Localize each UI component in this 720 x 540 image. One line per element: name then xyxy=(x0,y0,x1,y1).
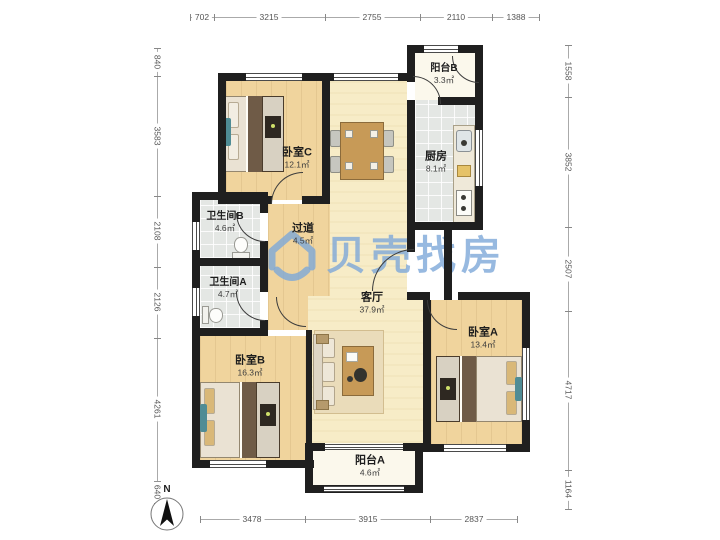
room-label-hallway: 过道 4.5㎡ xyxy=(292,221,314,246)
wall xyxy=(423,300,431,444)
bed-a-throw xyxy=(515,377,522,401)
dim-tick xyxy=(154,338,161,339)
wall xyxy=(438,97,483,105)
room-name: 卧室C xyxy=(282,146,312,158)
toilet-b-bowl xyxy=(234,237,248,253)
dim-top-1: 3215 xyxy=(257,12,282,23)
dim-tick xyxy=(154,267,161,268)
room-area: 4.6㎡ xyxy=(355,468,385,479)
window xyxy=(246,73,302,81)
kitchen-item xyxy=(457,165,471,177)
dim-bottom-0: 3478 xyxy=(240,514,265,525)
watermark-text: 贝壳找房 xyxy=(326,236,506,276)
dim-tick xyxy=(214,14,215,21)
room-area: 4.5㎡ xyxy=(292,236,314,247)
stove-burner xyxy=(461,195,466,200)
wall xyxy=(407,222,483,230)
wardrobe-b-knob xyxy=(266,412,270,416)
toilet-a-tank xyxy=(202,306,209,324)
dining-plate xyxy=(345,162,353,170)
dim-tick xyxy=(565,311,572,312)
dim-top-0: 702 xyxy=(192,12,212,23)
dim-right-2: 2507 xyxy=(563,257,574,282)
toilet-a-bowl xyxy=(209,308,223,323)
dim-right-3: 4717 xyxy=(563,378,574,403)
window xyxy=(192,222,200,250)
room-name: 过道 xyxy=(292,222,314,234)
north-arrow-icon xyxy=(148,495,186,533)
bed-b-throw xyxy=(200,404,207,432)
dim-tick xyxy=(565,45,572,46)
room-name: 卫生间A xyxy=(209,277,246,288)
room-label-balcony-b: 阳台B 3.3㎡ xyxy=(430,62,457,86)
bed-a-blanket xyxy=(460,356,476,422)
bed-b-blanket xyxy=(240,382,256,458)
dim-tick xyxy=(325,14,326,21)
dim-tick xyxy=(517,516,518,523)
dim-tick xyxy=(420,14,421,21)
dining-chair xyxy=(383,156,394,173)
wall xyxy=(192,192,268,200)
room-area: 16.3㎡ xyxy=(235,368,265,379)
wall xyxy=(260,192,268,213)
wardrobe-c-knob xyxy=(271,124,275,128)
coffee-table-plant xyxy=(354,368,367,382)
room-name: 卫生间B xyxy=(206,211,243,222)
dining-plate xyxy=(345,130,353,138)
dim-tick xyxy=(154,196,161,197)
wall xyxy=(458,292,530,300)
room-area: 4.6㎡ xyxy=(206,223,243,234)
dim-tick xyxy=(565,470,572,471)
dim-right-4: 1164 xyxy=(563,477,574,501)
window xyxy=(192,288,200,316)
wall xyxy=(407,100,415,230)
dim-tick xyxy=(565,509,572,510)
sliding-door xyxy=(325,444,403,450)
room-label-bath-b: 卫生间B 4.6㎡ xyxy=(206,210,243,234)
room-label-bedroom-b: 卧室B 16.3㎡ xyxy=(235,353,265,378)
dim-left-3: 2126 xyxy=(152,290,163,315)
dim-tick xyxy=(430,516,431,523)
window xyxy=(475,130,483,186)
dim-bottom-2: 2837 xyxy=(462,514,487,525)
room-name: 阳台A xyxy=(355,454,385,466)
kitchen-stove xyxy=(456,190,472,216)
dim-top-3: 2110 xyxy=(444,12,468,23)
room-area: 12.1㎡ xyxy=(282,160,312,171)
room-label-living: 客厅 37.9㎡ xyxy=(359,290,384,315)
north-label: N xyxy=(163,484,170,495)
dim-right-1: 3852 xyxy=(563,150,574,175)
wardrobe-a-knob xyxy=(446,386,450,390)
wall xyxy=(260,241,268,292)
floorplan-canvas: 贝壳找房 卧室C 12.1㎡ xyxy=(0,0,720,540)
dimension-line-left xyxy=(157,48,158,503)
wall xyxy=(403,443,423,451)
room-name: 阳台B xyxy=(430,63,457,74)
stove-burner xyxy=(461,206,466,211)
dining-chair xyxy=(383,130,394,147)
room-label-bedroom-a: 卧室A 13.4㎡ xyxy=(468,325,498,350)
sofa-arm xyxy=(316,334,329,344)
dim-right-0: 1558 xyxy=(563,59,574,84)
bed-c-blanket xyxy=(246,96,262,172)
wall xyxy=(218,73,226,200)
wall xyxy=(444,230,452,300)
sofa-arm xyxy=(316,400,329,410)
wall xyxy=(192,258,268,266)
kitchen-faucet xyxy=(461,140,467,146)
room-label-balcony-a: 阳台A 4.6㎡ xyxy=(355,453,385,478)
dim-tick xyxy=(565,227,572,228)
room-name: 卧室A xyxy=(468,326,498,338)
room-area: 3.3㎡ xyxy=(430,75,457,86)
dim-top-2: 2755 xyxy=(360,12,385,23)
window xyxy=(424,45,458,53)
wall xyxy=(192,328,268,336)
dining-plate xyxy=(370,162,378,170)
sofa-cushion xyxy=(322,362,335,382)
room-area: 37.9㎡ xyxy=(359,305,384,316)
dim-tick xyxy=(492,14,493,21)
north-indicator: N xyxy=(148,484,186,536)
wall xyxy=(407,292,430,300)
dim-left-0: 840 xyxy=(152,52,163,72)
wall xyxy=(322,81,330,204)
dim-tick xyxy=(539,14,540,21)
window xyxy=(522,348,530,420)
dim-tick xyxy=(154,48,161,49)
window xyxy=(444,444,506,452)
dim-tick xyxy=(200,516,201,523)
room-name: 客厅 xyxy=(361,291,383,303)
wall xyxy=(260,320,268,336)
coffee-table-tray xyxy=(346,352,358,362)
balcony-railing-window xyxy=(324,486,404,492)
dim-bottom-1: 3915 xyxy=(356,514,381,525)
room-name: 卧室B xyxy=(235,354,265,366)
room-label-bath-a: 卫生间A 4.7㎡ xyxy=(209,276,246,300)
room-name: 厨房 xyxy=(425,150,447,162)
dim-tick xyxy=(154,76,161,77)
dim-left-4: 4261 xyxy=(152,397,163,422)
dim-tick xyxy=(305,516,306,523)
window xyxy=(334,73,398,81)
wall xyxy=(305,443,325,451)
dim-left-2: 2108 xyxy=(152,219,163,244)
dim-tick xyxy=(190,14,191,21)
window xyxy=(210,460,266,468)
dining-plate xyxy=(370,130,378,138)
dim-left-1: 3583 xyxy=(152,124,163,149)
room-area: 8.1㎡ xyxy=(425,164,447,175)
room-label-bedroom-c: 卧室C 12.1㎡ xyxy=(282,145,312,170)
coffee-table-item xyxy=(347,376,353,382)
dim-tick xyxy=(565,97,572,98)
room-area: 13.4㎡ xyxy=(468,340,498,351)
room-label-kitchen: 厨房 8.1㎡ xyxy=(425,149,447,174)
dim-top-4: 1388 xyxy=(504,12,529,23)
room-area: 4.7㎡ xyxy=(209,289,246,300)
